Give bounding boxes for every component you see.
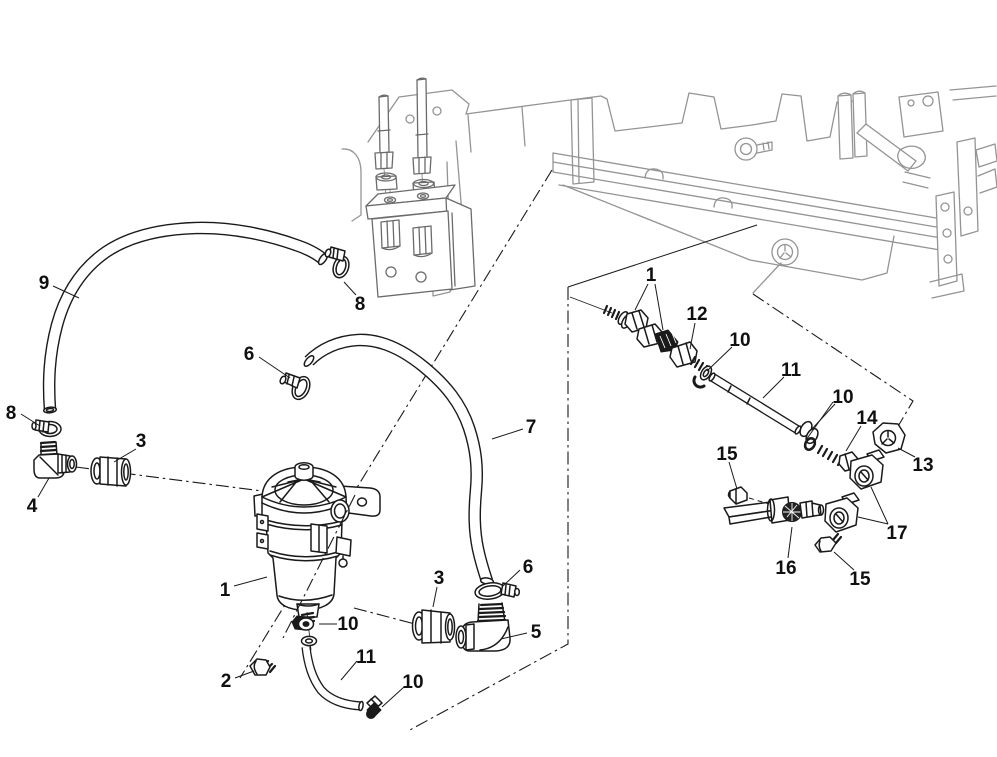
leader-line-10b xyxy=(382,687,404,707)
part-callout-8b: 8 xyxy=(6,403,40,426)
leader-line-4 xyxy=(38,478,49,497)
part-callout-3a: 3 xyxy=(114,431,146,462)
part-elbow-5 xyxy=(456,603,510,651)
part-number-label-6a: 6 xyxy=(244,344,255,365)
part-number-label-2: 2 xyxy=(221,671,232,692)
part-callout-14: 14 xyxy=(846,408,878,451)
part-number-label-1a: 1 xyxy=(220,580,231,601)
part-filter-assembly-1 xyxy=(254,463,380,617)
leader-line-14 xyxy=(846,426,861,451)
leader-line-11a xyxy=(341,661,357,680)
axis-boundary-vertical xyxy=(408,287,568,731)
leader-line-15b xyxy=(834,552,854,570)
part-tube-end-fitting-10 xyxy=(367,696,383,719)
leader-line-15a xyxy=(729,462,737,489)
leader-line-7 xyxy=(492,429,523,439)
part-callout-6b: 6 xyxy=(503,557,533,586)
part-fitting-3-left xyxy=(91,457,131,486)
part-hose-9 xyxy=(43,228,329,414)
part-callout-3b: 3 xyxy=(433,568,444,607)
part-number-label-1b: 1 xyxy=(646,265,657,286)
part-number-label-15b: 15 xyxy=(849,569,871,590)
part-number-label-7: 7 xyxy=(526,417,537,438)
part-number-label-15a: 15 xyxy=(716,444,738,465)
part-callout-7: 7 xyxy=(492,417,536,439)
part-fittings-1-chain xyxy=(604,306,678,352)
part-number-label-6b: 6 xyxy=(523,557,534,578)
part-number-label-11a: 11 xyxy=(356,647,377,668)
part-number-label-3b: 3 xyxy=(434,568,445,589)
part-clamp-6-left xyxy=(279,373,313,402)
part-callout-10c: 10 xyxy=(707,330,751,371)
leader-line-17 xyxy=(871,487,888,524)
part-callout-15a: 15 xyxy=(716,444,738,489)
part-number-label-8a: 8 xyxy=(355,294,366,315)
part-callout-16: 16 xyxy=(775,527,796,579)
part-bolt-2 xyxy=(250,659,275,675)
part-number-label-11b: 11 xyxy=(781,360,802,381)
part-number-label-12: 12 xyxy=(686,304,707,325)
part-number-label-13: 13 xyxy=(912,455,933,476)
part-number-label-4: 4 xyxy=(27,496,38,517)
part-clamp-6-right xyxy=(474,581,519,601)
part-number-label-9: 9 xyxy=(39,273,50,294)
part-number-label-10d: 10 xyxy=(832,387,853,408)
part-nut-13 xyxy=(873,423,905,453)
part-tube-11-right xyxy=(708,372,802,435)
part-plug-15-upper xyxy=(729,487,748,504)
part-number-label-14: 14 xyxy=(856,408,878,429)
part-callout-11a: 11 xyxy=(341,647,376,680)
part-number-label-17: 17 xyxy=(886,523,907,544)
part-number-label-8b: 8 xyxy=(6,403,17,424)
leader-line-16 xyxy=(788,527,792,558)
part-fitting-3-right xyxy=(413,610,455,643)
part-number-label-16: 16 xyxy=(775,558,796,579)
part-banjo-washers-10 xyxy=(292,612,317,650)
part-callout-13: 13 xyxy=(898,448,934,476)
part-callout-6a: 6 xyxy=(244,344,290,378)
leader-line-1b xyxy=(635,284,648,310)
leader-line-6a xyxy=(259,357,290,378)
part-fitting-12 xyxy=(670,342,707,373)
part-number-label-10a: 10 xyxy=(337,614,358,635)
part-callout-1a: 1 xyxy=(220,577,267,601)
part-number-label-10c: 10 xyxy=(729,330,750,351)
leader-line-2 xyxy=(235,671,254,678)
leader-line-10d xyxy=(806,402,833,440)
leader-line-6b xyxy=(503,570,520,586)
part-callout-2: 2 xyxy=(221,671,254,692)
part-callout-11b: 11 xyxy=(763,360,801,398)
leader-line-1b xyxy=(655,284,663,330)
part-callout-8a: 8 xyxy=(344,282,365,315)
leader-line-3b xyxy=(433,587,437,607)
part-clamp-8-lower xyxy=(32,420,61,437)
exploded-parts-diagram: 986783412101110365112101110141315171615 xyxy=(0,0,997,757)
leader-line-1a xyxy=(234,577,267,586)
part-clamp-8-upper xyxy=(324,247,351,280)
part-callout-10a: 10 xyxy=(319,614,359,635)
axis-filter-to-fitting3 xyxy=(354,608,415,624)
leader-line-10c xyxy=(707,347,732,371)
part-number-label-3a: 3 xyxy=(136,431,147,452)
part-elbow-4 xyxy=(34,442,77,478)
leader-line-17 xyxy=(858,517,888,524)
fuel-line-bracket xyxy=(366,78,475,297)
part-callout-17: 17 xyxy=(858,487,908,544)
part-callout-15b: 15 xyxy=(834,552,871,590)
part-callout-10b: 10 xyxy=(382,672,424,707)
part-callout-4: 4 xyxy=(27,478,49,517)
boundary-pointer-line xyxy=(568,225,757,287)
part-number-label-10b: 10 xyxy=(402,672,423,693)
part-elbow-17-lower xyxy=(825,493,859,532)
part-number-label-5: 5 xyxy=(531,622,542,643)
diagram-canvas: 986783412101110365112101110141315171615 xyxy=(0,0,997,757)
part-plug-15-lower xyxy=(815,534,841,552)
